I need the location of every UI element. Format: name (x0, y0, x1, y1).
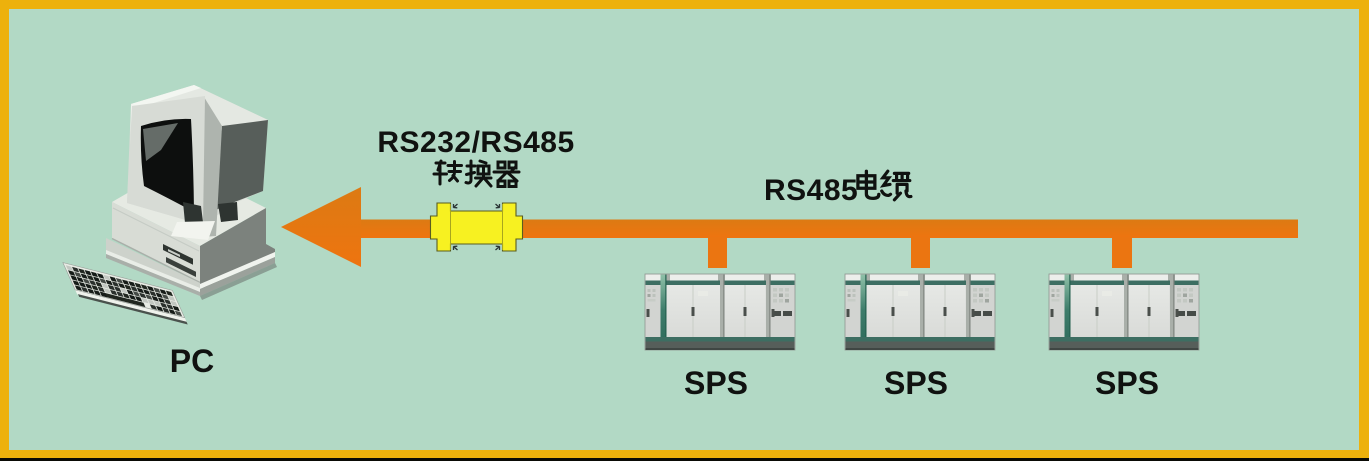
svg-text:RS485: RS485 (764, 174, 858, 207)
svg-text:SPS: SPS (884, 365, 948, 401)
svg-text:RS232/RS485: RS232/RS485 (377, 126, 574, 159)
svg-text:SPS: SPS (684, 365, 748, 401)
svg-text:PC: PC (170, 343, 214, 379)
svg-text:SPS: SPS (1095, 365, 1159, 401)
